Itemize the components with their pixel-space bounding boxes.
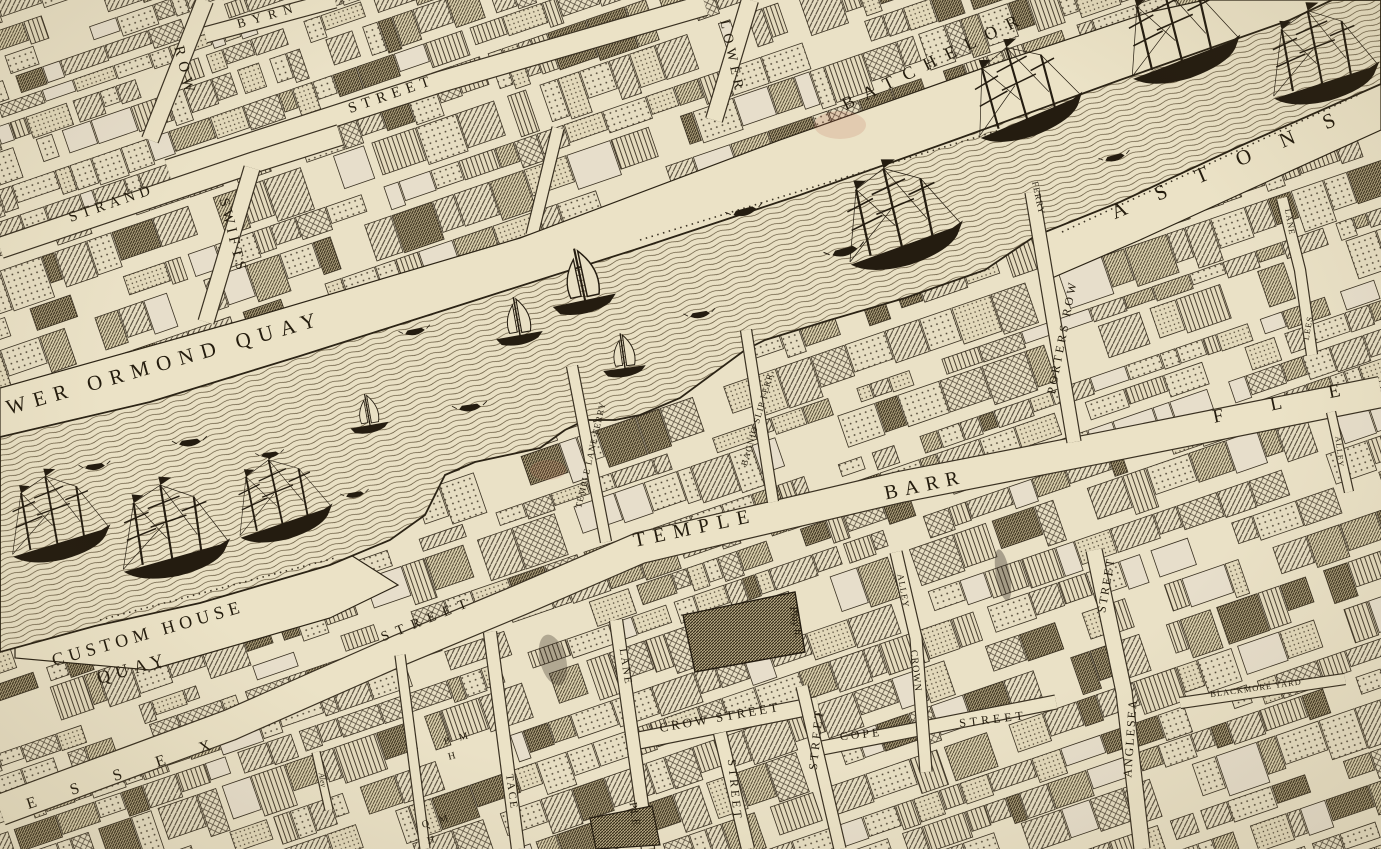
stain [530, 460, 566, 480]
map-canvas: BYRNROWSTREETLOWERBATCHELORSTRANDSWIFTSW… [0, 0, 1381, 849]
stain [814, 111, 866, 139]
engraved-map-art [0, 0, 1381, 849]
